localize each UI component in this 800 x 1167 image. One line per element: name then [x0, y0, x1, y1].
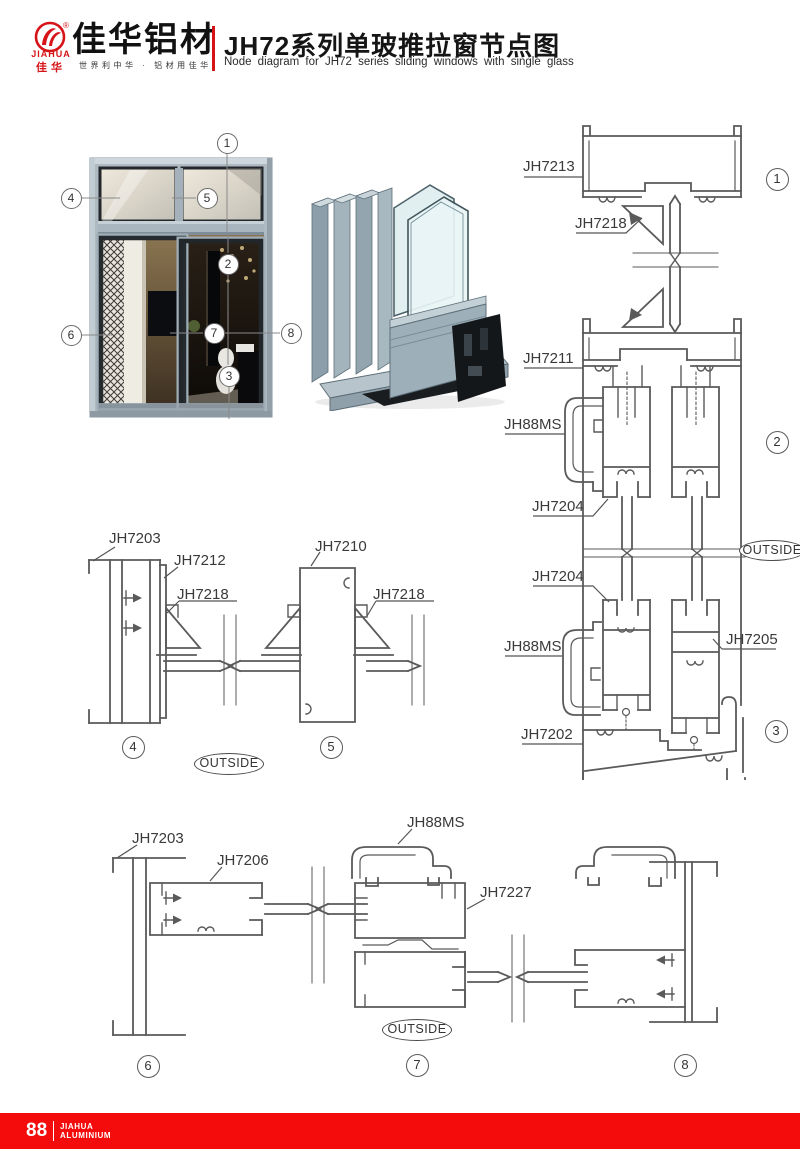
- section-drawing-bottom-horizontal: [60, 810, 800, 1090]
- window-callout-1: 1: [217, 133, 238, 154]
- label-jh7218-d4: JH7218: [177, 586, 229, 603]
- footer-brand: JIAHUA ALUMINIUM: [60, 1122, 111, 1140]
- window-callout-6: 6: [61, 325, 82, 346]
- footer-brand-line1: JIAHUA: [60, 1122, 93, 1131]
- window-callout-2: 2: [218, 254, 239, 275]
- window-callout-7: 7: [204, 323, 225, 344]
- detail-badge-2: 2: [766, 431, 789, 454]
- catalog-page: ® JIAHUA 佳华 佳华铝材 世界利中华 · 铝材用佳华 JH72系列单玻推…: [0, 0, 800, 1167]
- label-jh88ms-d2: JH88MS: [504, 416, 562, 433]
- section-drawing-vertical: [505, 120, 800, 780]
- window-callout-3: 3: [219, 366, 240, 387]
- label-jh7204-d2: JH7204: [532, 498, 584, 515]
- label-jh7218-d5: JH7218: [373, 586, 425, 603]
- detail-badge-1: 1: [766, 168, 789, 191]
- window-callout-5: 5: [197, 188, 218, 209]
- label-jh7203-d6: JH7203: [132, 830, 184, 847]
- section-drawing-top-horizontal: [60, 520, 450, 790]
- label-jh7203-d4: JH7203: [109, 530, 161, 547]
- window-callout-8: 8: [281, 323, 302, 344]
- detail-badge-4: 4: [122, 736, 145, 759]
- label-jh7213: JH7213: [523, 158, 575, 175]
- detail-badge-6: 6: [137, 1055, 160, 1078]
- detail-badge-5: 5: [320, 736, 343, 759]
- outside-tag-right: OUTSIDE: [739, 540, 800, 561]
- page-number: 88: [26, 1120, 47, 1142]
- label-jh7206: JH7206: [217, 852, 269, 869]
- window-callout-4: 4: [61, 188, 82, 209]
- detail-badge-3: 3: [765, 720, 788, 743]
- label-jh7205: JH7205: [726, 631, 778, 648]
- label-jh7218-d1: JH7218: [575, 215, 627, 232]
- footer-bar: 88 JIAHUA ALUMINIUM: [0, 1113, 800, 1149]
- detail-badge-7: 7: [406, 1054, 429, 1077]
- detail-badge-8: 8: [674, 1054, 697, 1077]
- label-jh7212: JH7212: [174, 552, 226, 569]
- label-jh88ms-d7: JH88MS: [407, 814, 465, 831]
- label-jh7227: JH7227: [480, 884, 532, 901]
- footer-divider: [53, 1121, 54, 1141]
- label-jh7210: JH7210: [315, 538, 367, 555]
- label-jh7202: JH7202: [521, 726, 573, 743]
- label-jh7211: JH7211: [523, 350, 574, 367]
- label-jh88ms-d3: JH88MS: [504, 638, 562, 655]
- label-jh7204-d3: JH7204: [532, 568, 584, 585]
- outside-tag-bottom: OUTSIDE: [382, 1019, 452, 1041]
- footer-brand-line2: ALUMINIUM: [60, 1131, 111, 1140]
- outside-tag-mid: OUTSIDE: [194, 753, 264, 775]
